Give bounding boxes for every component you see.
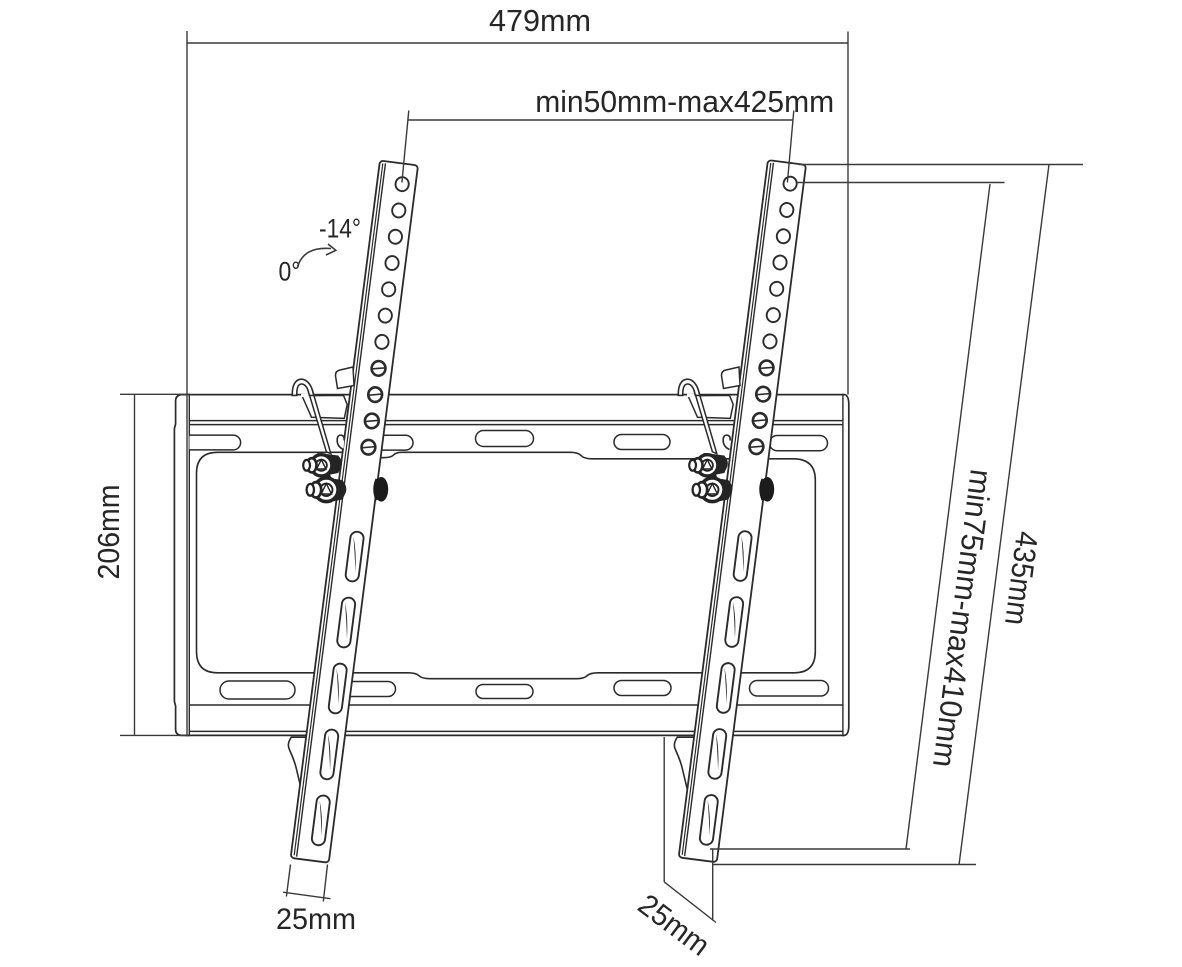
svg-text:0°: 0° [279, 257, 301, 287]
svg-text:206mm: 206mm [91, 485, 126, 580]
svg-text:479mm: 479mm [489, 3, 591, 38]
svg-text:25mm: 25mm [276, 903, 356, 936]
svg-text:-14°: -14° [319, 214, 361, 244]
svg-text:min50mm-max425mm: min50mm-max425mm [535, 84, 834, 119]
